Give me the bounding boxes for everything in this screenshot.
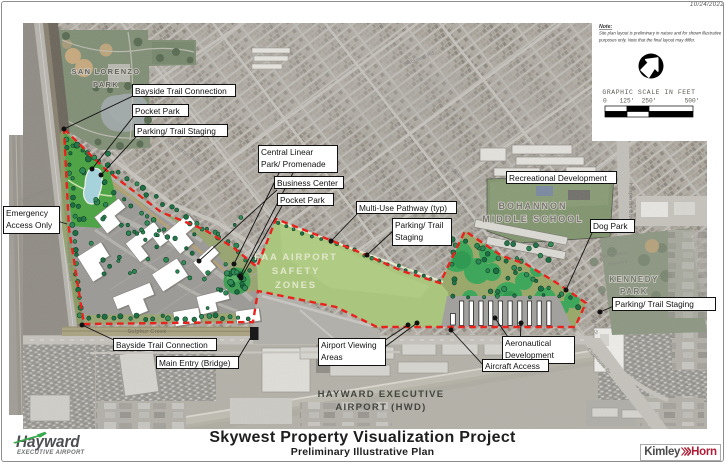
svg-text:PARK: PARK — [620, 287, 648, 296]
svg-text:0: 0 — [603, 98, 607, 105]
svg-text:FAA AIRPORT: FAA AIRPORT — [254, 252, 337, 263]
svg-text:500': 500' — [685, 98, 700, 105]
svg-text:125': 125' — [620, 98, 635, 105]
svg-text:Sulphur Creek: Sulphur Creek — [127, 329, 166, 335]
svg-text:GRAPHIC SCALE IN FEET: GRAPHIC SCALE IN FEET — [602, 89, 695, 96]
svg-text:Site plan layout is preliminar: Site plan layout is preliminary in natur… — [599, 31, 722, 36]
svg-text:purposes only. Note that the f: purposes only. Note that the final layou… — [598, 38, 695, 43]
svg-text:ZONES: ZONES — [275, 280, 317, 291]
svg-text:BOHANNON: BOHANNON — [499, 201, 568, 211]
svg-text:SAN LORENZO: SAN LORENZO — [72, 67, 141, 76]
svg-text:KENNEDY: KENNEDY — [609, 275, 659, 284]
svg-text:250': 250' — [642, 98, 657, 105]
svg-text:MIDDLE SCHOOL: MIDDLE SCHOOL — [482, 214, 584, 224]
svg-text:Note:: Note: — [599, 24, 613, 30]
svg-text:HAYWARD EXECUTIVE: HAYWARD EXECUTIVE — [318, 389, 445, 400]
svg-text:Hesperian Blvd.: Hesperian Blvd. — [627, 183, 633, 223]
svg-text:PARK: PARK — [93, 80, 119, 89]
svg-text:AIRPORT (HWD): AIRPORT (HWD) — [335, 402, 426, 413]
svg-text:SAFETY: SAFETY — [272, 266, 320, 277]
